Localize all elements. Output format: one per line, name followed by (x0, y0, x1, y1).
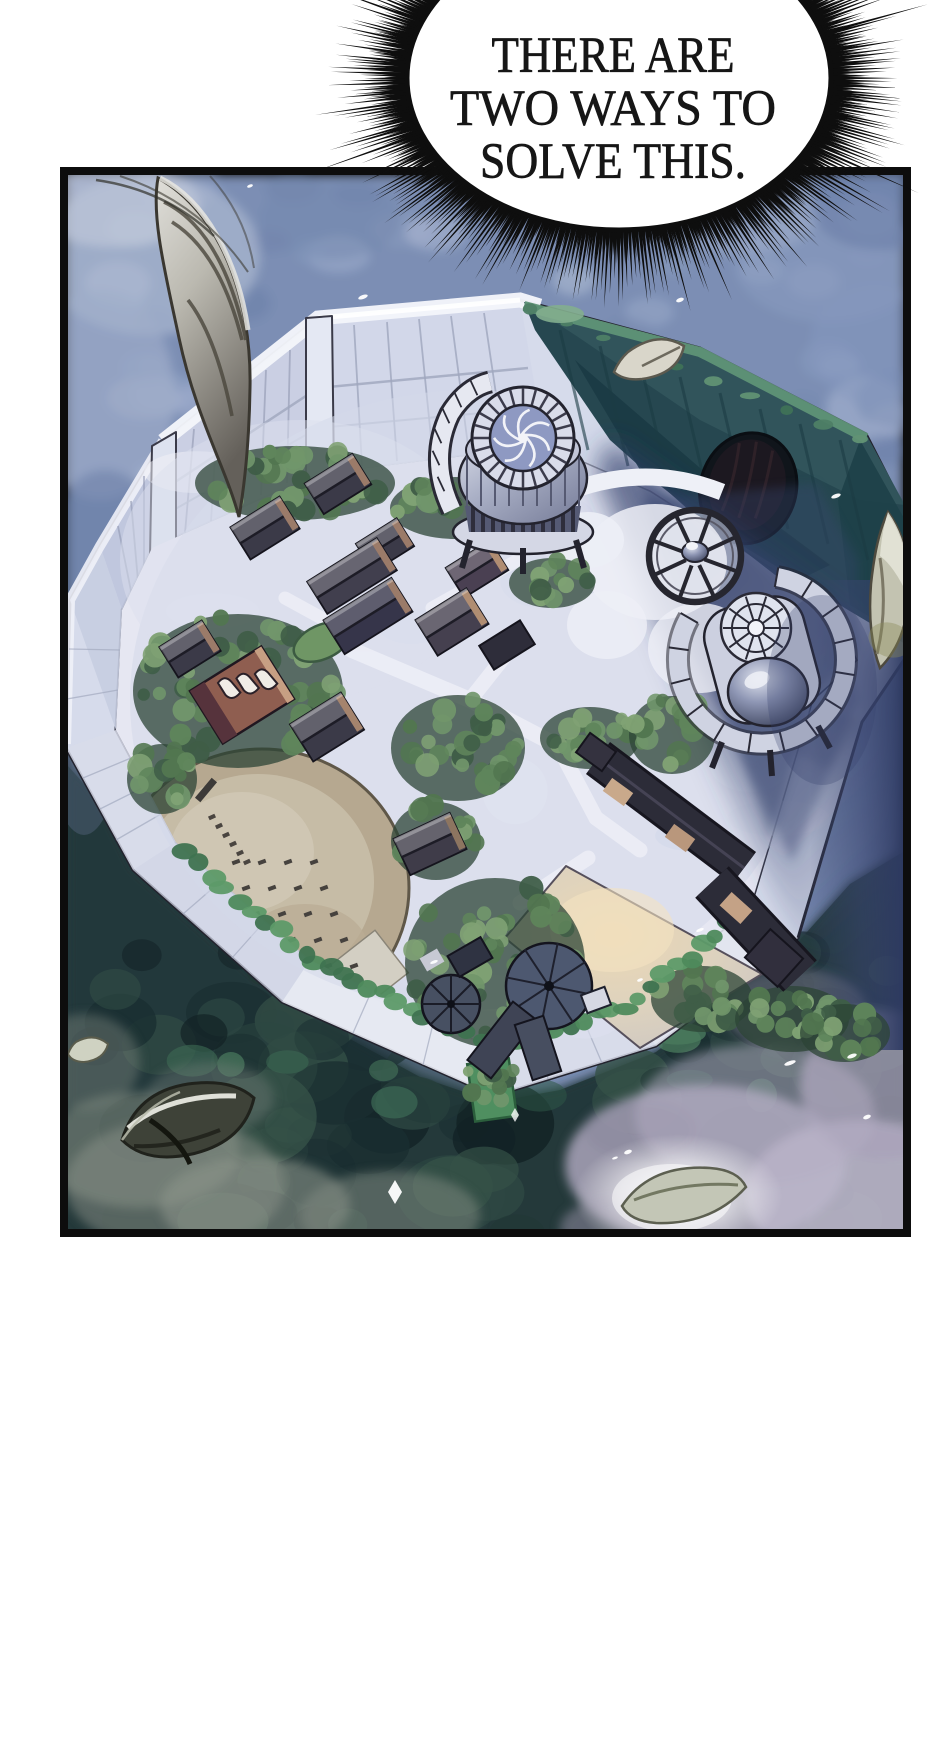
svg-text:SOLVE THIS.: SOLVE THIS. (480, 134, 746, 190)
svg-text:TWO WAYS TO: TWO WAYS TO (450, 81, 776, 137)
svg-text:THERE ARE: THERE ARE (492, 28, 735, 84)
